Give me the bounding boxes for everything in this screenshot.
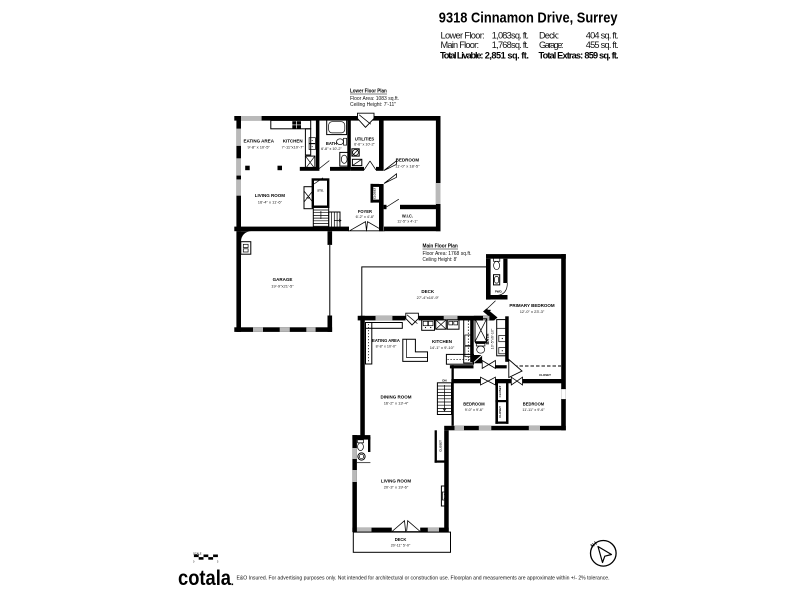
svg-text:Floor Area: 1083 sq.ft.: Floor Area: 1083 sq.ft. <box>350 96 399 102</box>
svg-text:DN: DN <box>442 378 446 382</box>
svg-text:FOYER: FOYER <box>358 209 372 214</box>
svg-text:14'-1" x 9'-10": 14'-1" x 9'-10" <box>430 345 455 350</box>
svg-text:FP: FP <box>306 196 310 200</box>
svg-text:16'-4" x 11'-6": 16'-4" x 11'-6" <box>258 200 283 205</box>
svg-text:BATH: BATH <box>326 141 337 146</box>
svg-text:CLOSET: CLOSET <box>498 385 502 397</box>
svg-text:Garage:: Garage: <box>539 40 564 50</box>
svg-text:11'-11" x 9'-6": 11'-11" x 9'-6" <box>522 408 545 412</box>
svg-text:GARAGE: GARAGE <box>273 277 293 282</box>
svg-text:0: 0 <box>193 561 195 564</box>
svg-text:859 sq. ft.: 859 sq. ft. <box>584 50 618 60</box>
svg-text:LIVING ROOM: LIVING ROOM <box>255 193 286 198</box>
svg-text:DINING ROOM: DINING ROOM <box>381 395 412 400</box>
svg-text:16'-2" x 13'-4": 16'-2" x 13'-4" <box>384 401 409 406</box>
svg-text:9'-8" x 10'-5": 9'-8" x 10'-5" <box>248 145 271 150</box>
svg-text:9318 Cinnamon Drive, Surrey: 9318 Cinnamon Drive, Surrey <box>439 10 618 27</box>
svg-text:6'-8" x 10'-2": 6'-8" x 10'-2" <box>321 147 342 151</box>
svg-text:Lower Floor Plan: Lower Floor Plan <box>350 89 387 95</box>
svg-text:STG.: STG. <box>317 189 324 193</box>
svg-text:PRIMARY BEDROOM: PRIMARY BEDROOM <box>509 303 555 308</box>
svg-text:DECK: DECK <box>421 289 435 294</box>
svg-text:CLOSET: CLOSET <box>372 187 376 199</box>
svg-text:Main Floor Plan: Main Floor Plan <box>423 244 458 250</box>
svg-text:455 sq. ft.: 455 sq. ft. <box>586 40 619 50</box>
svg-text:E&O Insured. For advertising p: E&O Insured. For advertising purposes on… <box>237 576 610 582</box>
svg-text:8'-8" x 10'-0": 8'-8" x 10'-0" <box>376 345 397 349</box>
svg-text:11'-5" x 4'-1": 11'-5" x 4'-1" <box>397 220 418 224</box>
svg-text:Total Livable:: Total Livable: <box>440 50 483 60</box>
svg-text:BATH: BATH <box>485 333 490 344</box>
svg-text:Floor Area: 1768 sq.ft.: Floor Area: 1768 sq.ft. <box>423 251 472 257</box>
svg-text:KITCHEN: KITCHEN <box>432 339 452 344</box>
svg-text:1,083sq. ft.: 1,083sq. ft. <box>492 31 529 41</box>
svg-text:W.I.C.: W.I.C. <box>402 214 413 219</box>
svg-text:BEDROOM: BEDROOM <box>523 402 545 407</box>
svg-text:20'-11" 5'-0": 20'-11" 5'-0" <box>391 544 411 548</box>
svg-text:LIVING ROOM: LIVING ROOM <box>381 479 412 484</box>
svg-text:CLOSET: CLOSET <box>439 440 443 452</box>
svg-text:404 sq. ft.: 404 sq. ft. <box>586 31 619 41</box>
svg-text:Deck:: Deck: <box>539 31 559 41</box>
svg-text:Total Extras:: Total Extras: <box>539 50 584 60</box>
svg-text:Ceiling Height: 7'-11": Ceiling Height: 7'-11" <box>350 102 396 108</box>
svg-text:19'-9"x21'-5": 19'-9"x21'-5" <box>271 284 294 289</box>
svg-text:PWD.: PWD. <box>495 290 503 294</box>
svg-text:BEDROOM: BEDROOM <box>463 402 485 407</box>
svg-text:Ceiling Height: 8': Ceiling Height: 8' <box>423 257 458 263</box>
svg-text:Lower Floor:: Lower Floor: <box>441 31 485 41</box>
svg-text:Main Floor:: Main Floor: <box>441 40 480 50</box>
svg-text:UTILITIES: UTILITIES <box>355 136 375 141</box>
svg-text:KITCHEN: KITCHEN <box>283 139 303 144</box>
svg-text:10'-5"x6'-10": 10'-5"x6'-10" <box>490 328 494 349</box>
svg-text:CLOSET: CLOSET <box>498 406 502 418</box>
svg-text:EATING AREA: EATING AREA <box>243 139 274 144</box>
svg-text:1,768sq. ft.: 1,768sq. ft. <box>492 40 529 50</box>
svg-text:EATING AREA: EATING AREA <box>372 338 400 343</box>
svg-text:DECK: DECK <box>395 537 407 542</box>
svg-text:9'-0" x 9'-6": 9'-0" x 9'-6" <box>465 408 484 412</box>
svg-text:27'-4"x10'-9": 27'-4"x10'-9" <box>417 295 440 300</box>
svg-text:20'-3" x 19'-6": 20'-3" x 19'-6" <box>384 485 409 490</box>
svg-text:7'-11"x10'-7": 7'-11"x10'-7" <box>282 145 305 150</box>
svg-text:CLOSET: CLOSET <box>539 373 551 377</box>
svg-text:6'-6" x 10'-2": 6'-6" x 10'-2" <box>354 143 375 147</box>
svg-text:6'-2" x 4'-8": 6'-2" x 4'-8" <box>356 215 375 219</box>
svg-text:cotala: cotala <box>178 567 231 590</box>
svg-text:11'-0" x 18'-5": 11'-0" x 18'-5" <box>395 164 420 169</box>
svg-text:12'-0" x 23'-3": 12'-0" x 23'-3" <box>520 309 545 314</box>
svg-text:5: 5 <box>217 561 219 564</box>
svg-text:2,851 sq. ft.: 2,851 sq. ft. <box>485 50 529 60</box>
svg-text:BEDROOM: BEDROOM <box>396 158 420 163</box>
